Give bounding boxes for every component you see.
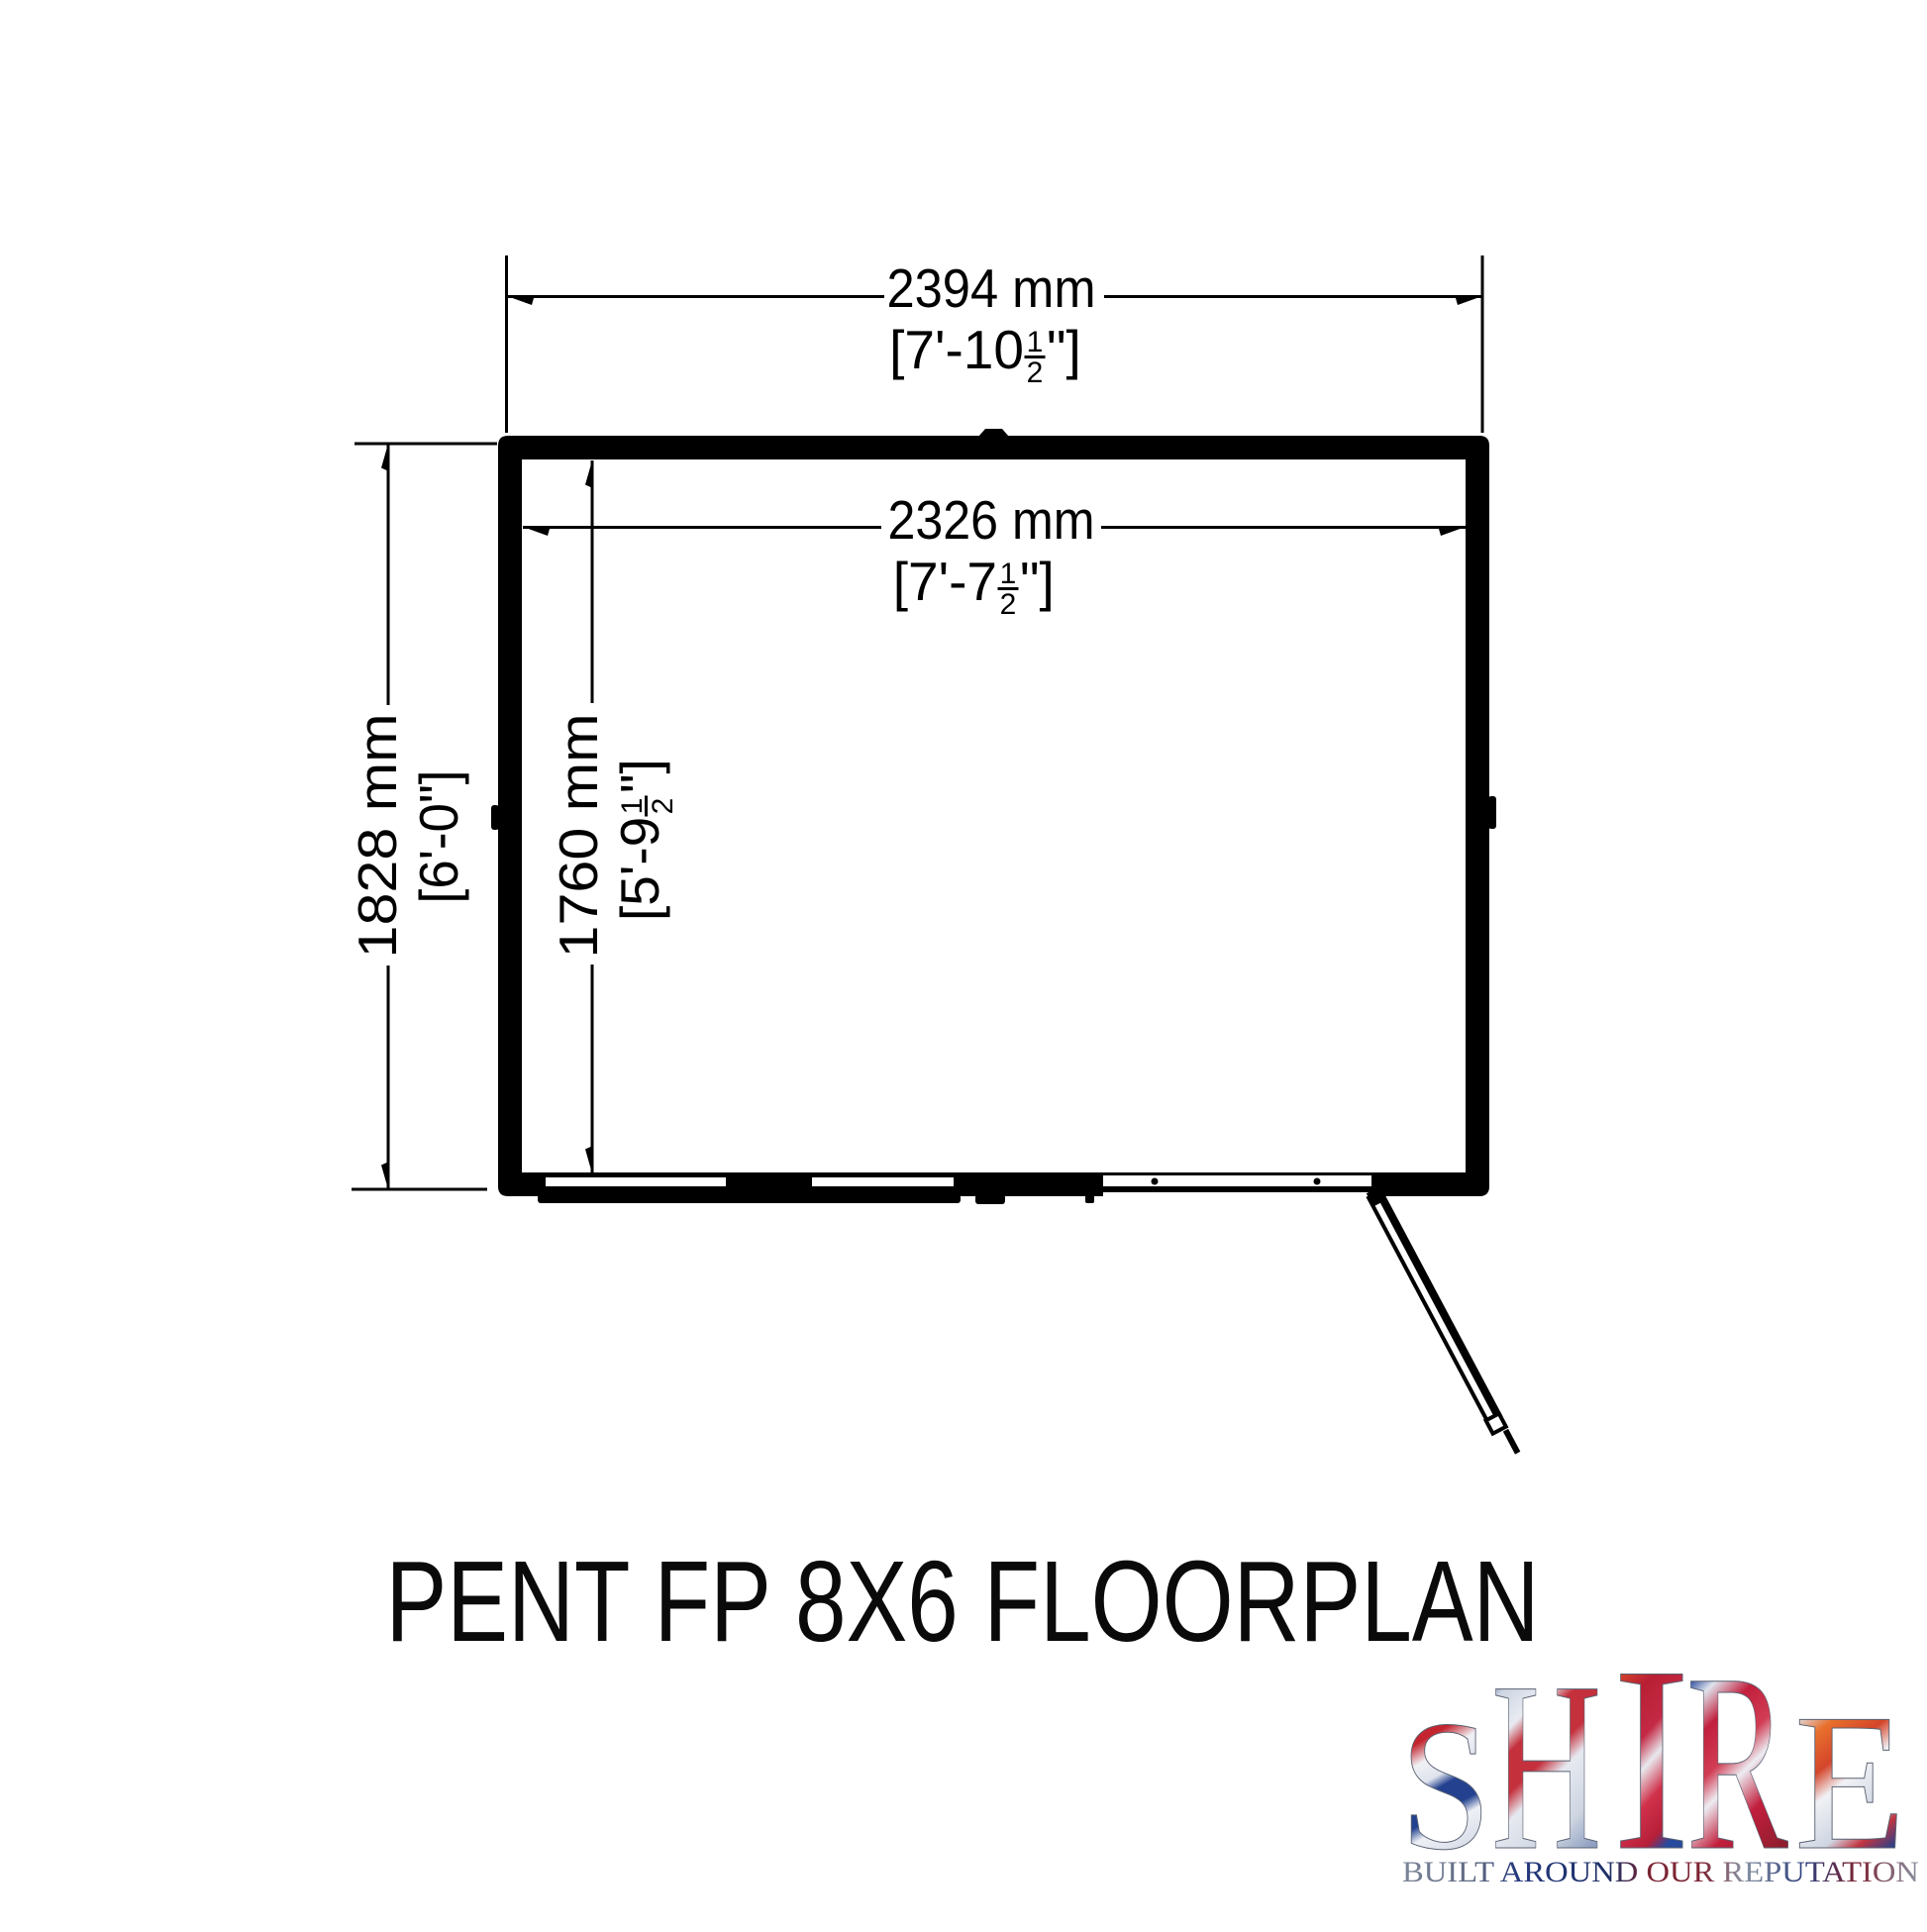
svg-text:2: 2	[1000, 588, 1017, 621]
svg-text:[7'-7: [7'-7	[893, 551, 997, 612]
svg-text:2394 mm: 2394 mm	[887, 257, 1096, 319]
svg-text:"]: "]	[1020, 551, 1055, 612]
svg-text:"]: "]	[609, 759, 670, 793]
svg-text:BUILT AROUND OUR REPUTATION: BUILT AROUND OUR REPUTATION	[1402, 1856, 1919, 1888]
svg-text:PENT FP 8X6 FLOORPLAN: PENT FP 8X6 FLOORPLAN	[386, 1537, 1540, 1666]
svg-text:[6'-0"]: [6'-0"]	[408, 770, 469, 904]
svg-text:"]: "]	[1047, 319, 1081, 380]
svg-text:1760 mm: 1760 mm	[548, 714, 609, 959]
svg-text:1: 1	[1000, 558, 1017, 590]
svg-text:[5'-9: [5'-9	[609, 817, 670, 921]
svg-text:[7'-10: [7'-10	[889, 319, 1024, 380]
svg-text:1: 1	[1027, 326, 1044, 358]
svg-text:2: 2	[1027, 356, 1044, 389]
svg-text:2: 2	[647, 798, 679, 815]
svg-text:1828 mm: 1828 mm	[347, 714, 408, 959]
svg-text:1: 1	[616, 798, 649, 815]
svg-text:2326 mm: 2326 mm	[888, 489, 1095, 551]
